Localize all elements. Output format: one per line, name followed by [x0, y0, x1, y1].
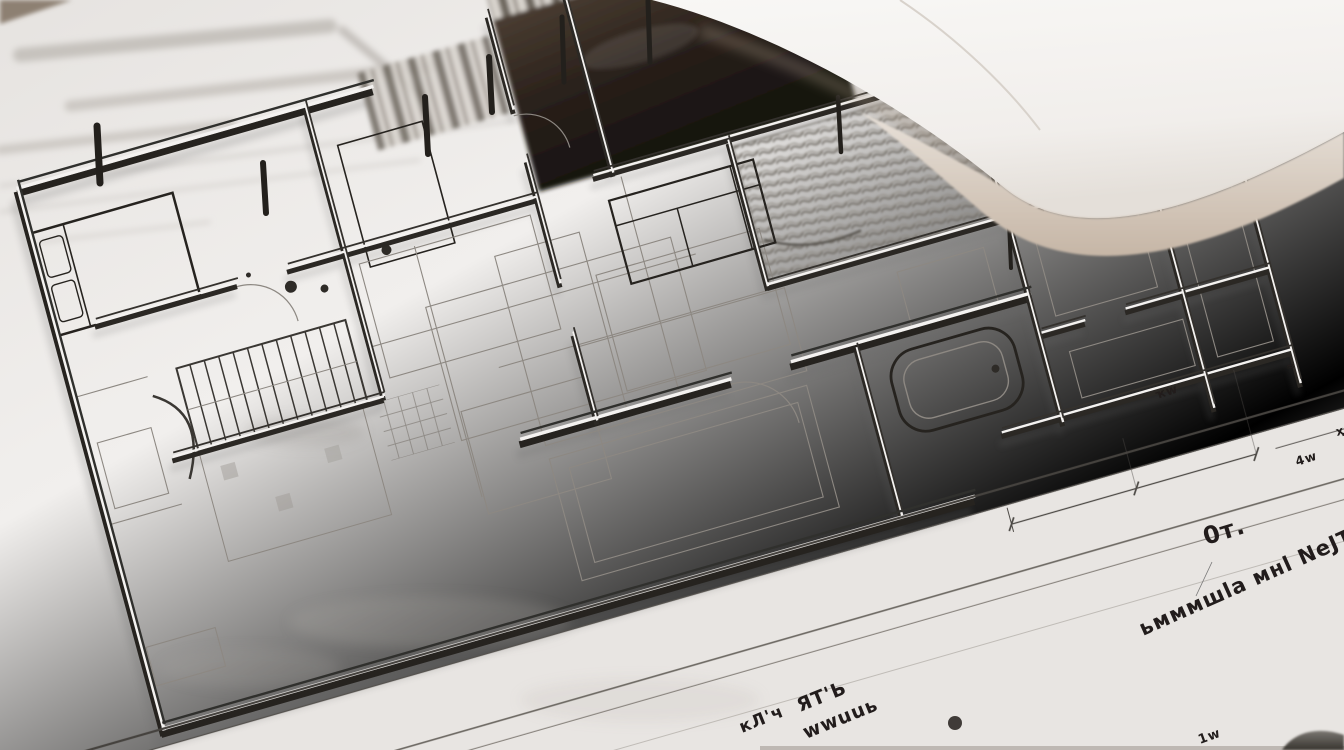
ink-dot — [948, 716, 962, 730]
blueprint-photo: 0т. ьмммшlа мнl NeJTO ЯТ'Ь wwuuь кЛ'ч 4w… — [0, 0, 1344, 750]
